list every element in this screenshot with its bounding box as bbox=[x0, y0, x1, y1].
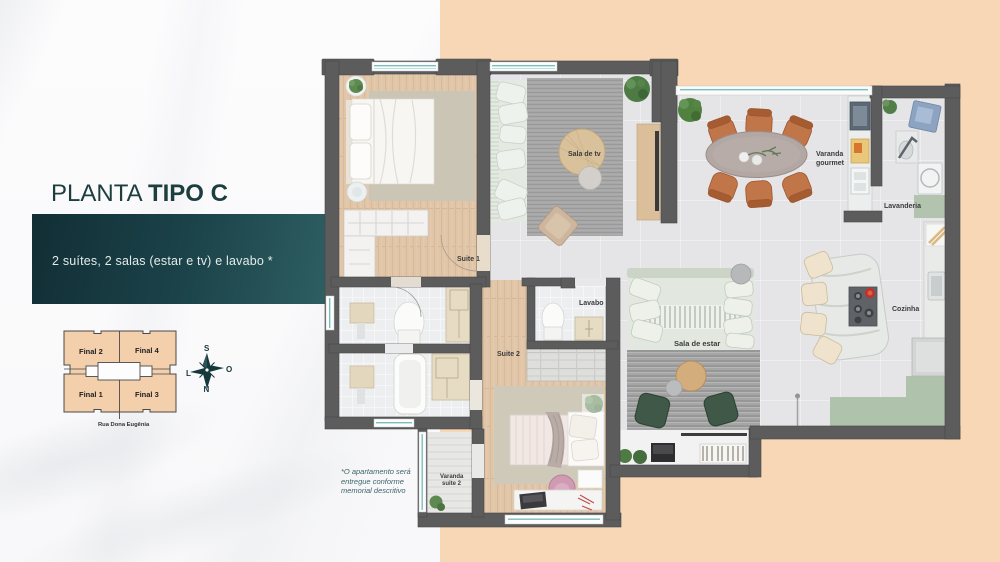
svg-text:Final 2: Final 2 bbox=[79, 347, 103, 356]
svg-text:Cozinha: Cozinha bbox=[892, 306, 919, 313]
svg-text:suite 2: suite 2 bbox=[442, 481, 462, 487]
svg-text:Varanda: Varanda bbox=[440, 474, 464, 480]
svg-text:Lavanderia: Lavanderia bbox=[884, 203, 921, 210]
svg-text:gourmet: gourmet bbox=[816, 160, 845, 167]
svg-text:Lavabo: Lavabo bbox=[579, 300, 604, 307]
svg-text:O: O bbox=[226, 365, 232, 374]
svg-text:L: L bbox=[186, 369, 191, 378]
svg-text:Sala de tv: Sala de tv bbox=[568, 151, 601, 158]
svg-text:Final 1: Final 1 bbox=[79, 390, 103, 399]
svg-text:Varanda: Varanda bbox=[816, 151, 843, 158]
svg-text:Suite 1: Suite 1 bbox=[457, 256, 480, 263]
svg-text:Final 3: Final 3 bbox=[135, 390, 159, 399]
svg-text:N: N bbox=[204, 385, 210, 394]
svg-text:Rua Dona Eugênia: Rua Dona Eugênia bbox=[98, 422, 150, 428]
svg-text:Sala de estar: Sala de estar bbox=[674, 339, 720, 348]
svg-text:Final 4: Final 4 bbox=[135, 346, 160, 355]
svg-text:Suite 2: Suite 2 bbox=[497, 351, 520, 358]
svg-text:S: S bbox=[204, 344, 210, 353]
